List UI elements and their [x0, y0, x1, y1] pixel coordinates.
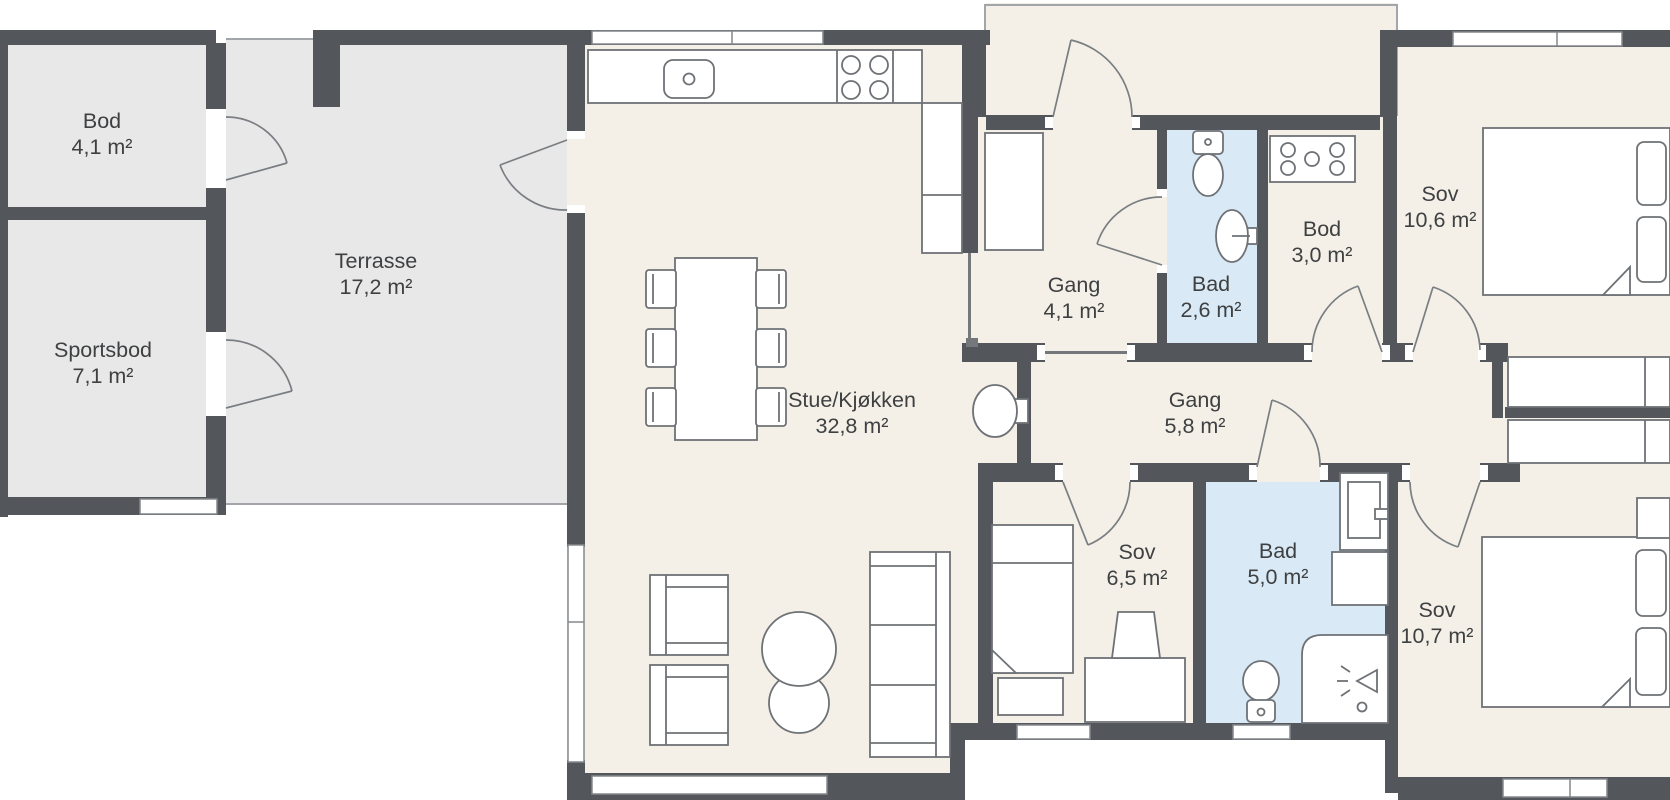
room-label-bad-small: Bad 2,6 m²: [1181, 271, 1242, 323]
room-label-stue-kjokken: Stue/Kjøkken 32,8 m²: [788, 387, 916, 439]
pillow: [1636, 628, 1666, 695]
window: [1453, 32, 1622, 46]
room-label-gang-inner: Gang 5,8 m²: [1165, 387, 1226, 439]
kitchen-counter: [588, 50, 962, 253]
door-bad-main: [1257, 400, 1320, 467]
washbasin: [1216, 210, 1257, 262]
pillow: [1637, 142, 1666, 205]
bathroom-cabinet: [1332, 552, 1388, 605]
window: [1503, 779, 1607, 797]
room-label-bod-storage: Bod 4,1 m²: [72, 108, 133, 160]
room-label-bad-main: Bad 5,0 m²: [1248, 538, 1309, 590]
glass-partition: [968, 253, 971, 343]
lounge-set: [650, 552, 950, 757]
single-bed: [992, 525, 1073, 673]
room-label-sov-3: Sov 10,7 m²: [1401, 597, 1474, 649]
bad-small-fixtures: [1193, 131, 1257, 262]
toilet: [1243, 661, 1279, 722]
door-bod-indoor: [1312, 286, 1382, 352]
room-label-terrasse: Terrasse 17,2 m²: [335, 248, 417, 300]
room-label-sportsbod: Sportsbod 7,1 m²: [54, 337, 152, 389]
door-bad-small: [1097, 197, 1162, 265]
kitchen-tall-unit: [922, 103, 962, 253]
door-bod-storage: [226, 117, 287, 180]
desk-chair: [1112, 612, 1160, 658]
sofa: [870, 552, 950, 757]
furniture: [588, 50, 1670, 757]
vanity: [1340, 473, 1388, 550]
door-terrasse-stue: [500, 140, 567, 210]
door-sov-1: [1413, 287, 1480, 352]
desk: [1085, 658, 1185, 722]
coffee-table: [762, 612, 836, 686]
partition-cap: [966, 338, 978, 347]
dining-set: [646, 258, 786, 440]
floor-plan: Bod 4,1 m² Sportsbod 7,1 m² Terrasse 17,…: [0, 0, 1670, 800]
window: [1017, 725, 1090, 739]
dining-table: [675, 258, 757, 440]
pillow: [1637, 217, 1666, 282]
door-sportsbod: [226, 340, 292, 408]
porch-outline: [985, 5, 1397, 116]
window: [592, 31, 823, 44]
pillow: [1636, 550, 1666, 616]
room-label-sov-1: Sov 10,6 m²: [1404, 181, 1477, 233]
laundry-unit: [1270, 136, 1355, 182]
room-label-sov-2: Sov 6,5 m²: [1107, 539, 1168, 591]
toilet: [1193, 131, 1223, 196]
door-sov-3: [1410, 482, 1480, 547]
room-label-bod-indoor: Bod 3,0 m²: [1292, 216, 1353, 268]
sov3-furniture: [1482, 498, 1670, 707]
window: [1233, 725, 1290, 739]
door-entry: [1053, 40, 1132, 117]
bad-main-fixtures: [1243, 473, 1388, 723]
room-label-gang-entry: Gang 4,1 m²: [1044, 272, 1105, 324]
sliding-door: [1045, 351, 1127, 354]
shower: [1302, 635, 1388, 723]
window: [592, 776, 827, 794]
nightstand: [1637, 498, 1670, 538]
window: [140, 499, 217, 514]
sov1-furniture: [1483, 128, 1670, 295]
nightstand: [998, 678, 1063, 715]
window: [568, 545, 584, 762]
wardrobe: [985, 133, 1043, 250]
